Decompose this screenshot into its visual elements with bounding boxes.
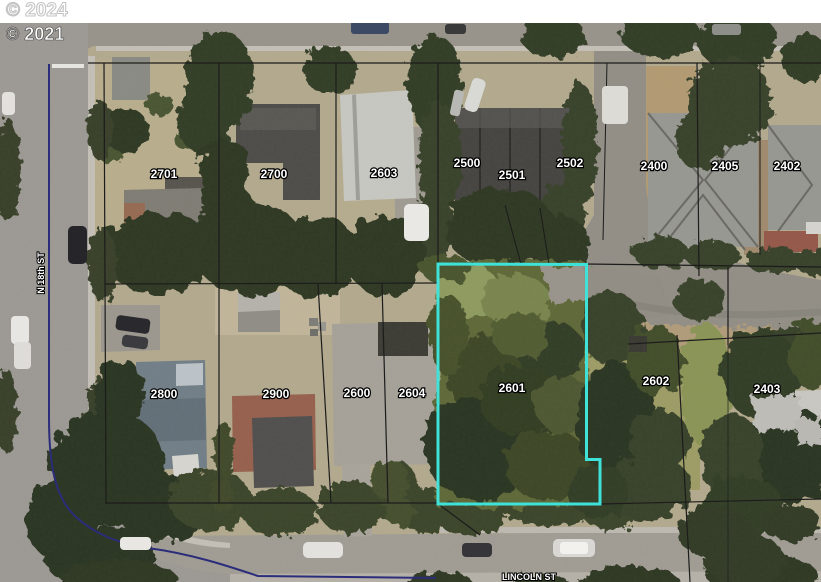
svg-text:2403: 2403 — [754, 382, 781, 396]
svg-text:2400: 2400 — [641, 159, 668, 173]
svg-text:2502: 2502 — [557, 156, 584, 170]
svg-text:© 2021: © 2021 — [6, 24, 64, 44]
svg-text:2900: 2900 — [263, 387, 290, 401]
svg-text:2602: 2602 — [643, 374, 670, 388]
svg-text:2500: 2500 — [454, 156, 481, 170]
svg-text:N 18th ST: N 18th ST — [36, 252, 46, 294]
svg-text:2700: 2700 — [261, 167, 288, 181]
svg-text:2603: 2603 — [371, 166, 398, 180]
svg-text:LINCOLN ST: LINCOLN ST — [502, 572, 556, 582]
svg-text:2501: 2501 — [499, 168, 526, 182]
svg-text:2600: 2600 — [344, 386, 371, 400]
svg-text:© 2024: © 2024 — [6, 0, 68, 21]
svg-text:2405: 2405 — [712, 159, 739, 173]
svg-text:2604: 2604 — [399, 386, 426, 400]
svg-text:2601: 2601 — [499, 381, 526, 395]
svg-text:2800: 2800 — [151, 387, 178, 401]
svg-text:2402: 2402 — [774, 159, 801, 173]
svg-text:2701: 2701 — [151, 167, 178, 181]
